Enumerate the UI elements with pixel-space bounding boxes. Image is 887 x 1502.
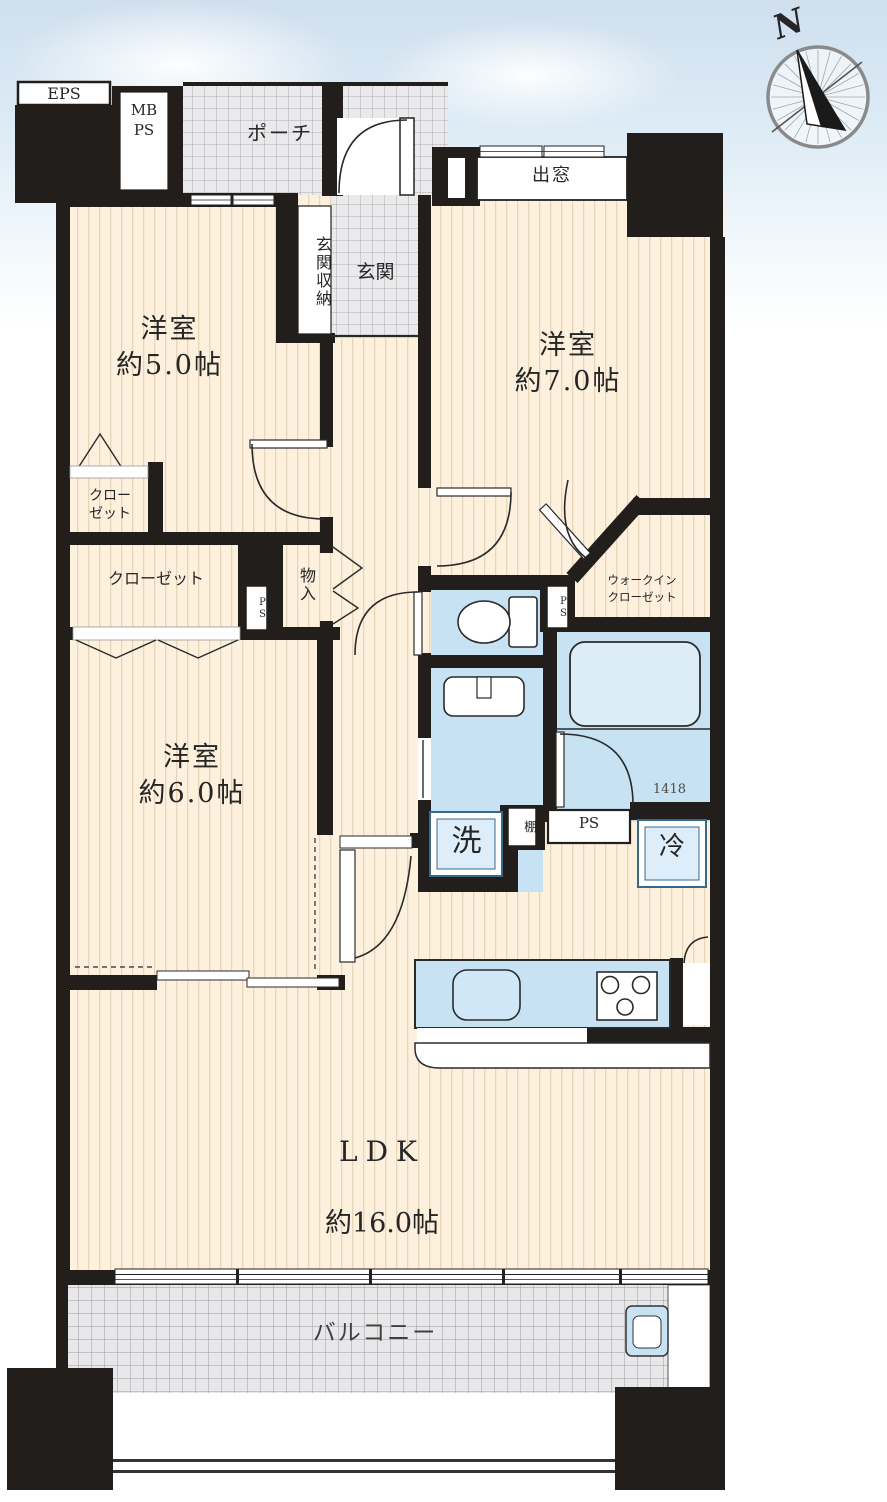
storage-label: 物入 [288,549,314,621]
kitchen-sink-icon [453,970,520,1020]
ldk-name: LDK [267,1134,497,1171]
room-label-ldk: LDK 約16.0帖 [267,1098,497,1277]
room-label-bedroom7: 洋室 約7.0帖 [438,328,698,399]
compass-icon [768,47,868,147]
laundry-label: 洗 [433,822,500,862]
ps-label-hall: PS [246,590,267,628]
bath-size-label: 1418 [600,781,700,798]
front-door-leaf [400,118,414,195]
ps-label-wic: PS [547,589,568,627]
slop-sink-icon [626,1306,668,1356]
refrigerator-label: 冷 [639,830,705,864]
washbasin-icon [444,677,524,716]
porch-label: ポーチ [200,120,360,146]
mb-ps-label: MB PS [120,101,168,141]
entrance-storage-label: 玄関収納 [300,212,330,332]
kitchen-ledge [415,1043,710,1068]
floor-plan-page: EPS MB PS ポーチ 玄関収納 玄関 出窓 洋室 約5.0帖 洋室 約7.… [0,0,887,1502]
balcony-label: バルコニー [295,1318,455,1348]
toilet-icon [458,597,537,647]
ldk-size: 約16.0帖 [267,1206,497,1242]
entrance-label: 玄関 [333,260,418,285]
room-label-bedroom5: 洋室 約5.0帖 [62,312,277,383]
closet2-label: クローゼット [70,568,242,589]
walk-in-closet-label: ウォークイン クローゼット [576,572,708,605]
kitchen-counter [415,960,710,1068]
ps-label-bath: PS [548,814,630,834]
balcony-end-partition [668,1285,710,1390]
bay-window-label: 出窓 [487,164,617,188]
hall-ldk-door-leaf [340,850,355,962]
eps-label: EPS [18,82,110,105]
shelf-label: 棚 [509,813,535,841]
stove-icon [597,972,657,1020]
bathtub-icon [557,642,710,729]
room-label-bedroom6: 洋室 約6.0帖 [62,740,322,811]
balcony-railing [113,1459,615,1473]
closet1-label: クロー ゼット [72,487,148,524]
